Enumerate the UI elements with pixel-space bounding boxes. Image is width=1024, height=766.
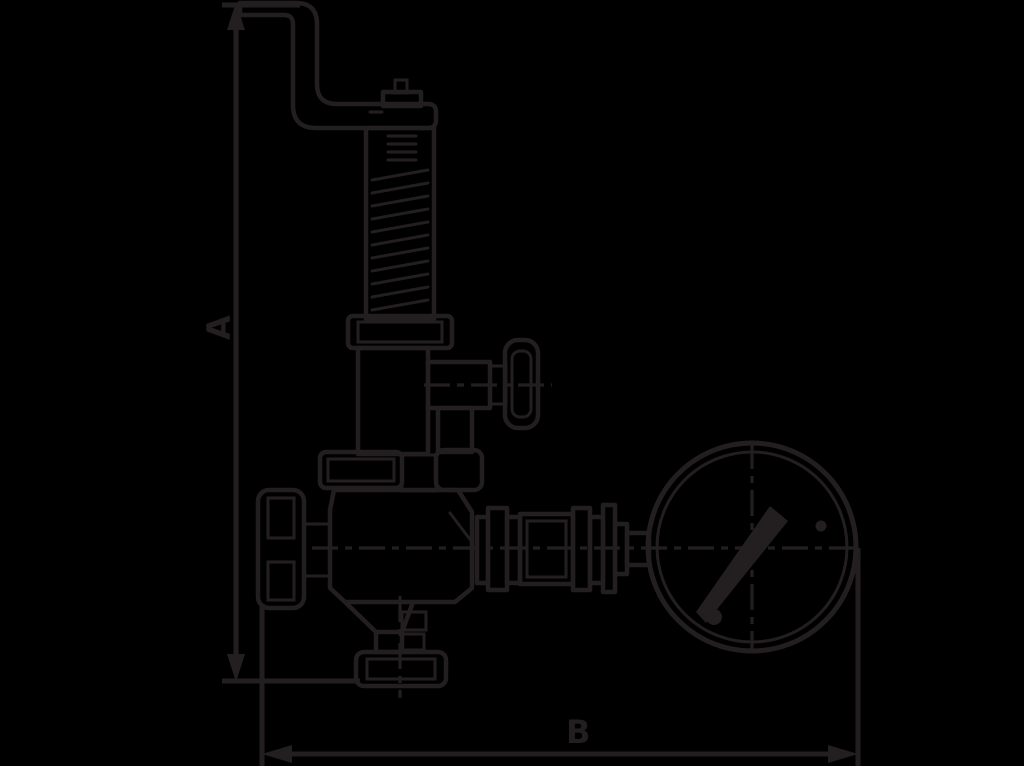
dimension-b-label: B — [566, 713, 590, 751]
lifting-lever — [240, 3, 436, 128]
spring-housing — [366, 128, 434, 320]
arrow-down-icon — [227, 654, 245, 682]
spindle-thread-hatch — [388, 136, 416, 160]
valve-technical-drawing: A B — [0, 0, 1024, 766]
spindle-nut — [383, 92, 421, 106]
arrow-right-icon — [828, 745, 858, 763]
spring-coils — [372, 170, 428, 310]
handwheel-inner-top — [268, 498, 294, 538]
funnel-right-edge — [402, 602, 413, 632]
funnel-left-edge — [345, 602, 376, 632]
branch-flange — [436, 450, 482, 490]
gauge-screw-upper — [816, 521, 827, 532]
body-flange — [320, 452, 402, 488]
bonnet — [358, 348, 428, 454]
dimension-a-label: A — [200, 315, 238, 340]
handwheel-inner-bottom — [268, 562, 294, 600]
handwheel-stem — [304, 524, 330, 576]
valve-body — [330, 490, 472, 602]
bottom-outlet — [345, 602, 446, 686]
arrow-left-icon — [262, 745, 292, 763]
flange-neck — [402, 455, 436, 491]
body-chamfer — [450, 513, 472, 542]
gauge-needle — [696, 506, 788, 623]
body-flange-inner — [328, 459, 394, 481]
outlet-neck — [376, 632, 402, 652]
cap-flange-inner — [358, 322, 442, 342]
handwheel-outline — [258, 490, 304, 608]
test-connection — [428, 340, 538, 490]
dimension-b: B — [262, 548, 858, 766]
drawing-canvas: A B — [0, 0, 1024, 766]
branch-pipe — [438, 408, 472, 452]
clamp-detail-bottom — [402, 634, 424, 650]
gauge-screw-lower — [706, 609, 722, 625]
